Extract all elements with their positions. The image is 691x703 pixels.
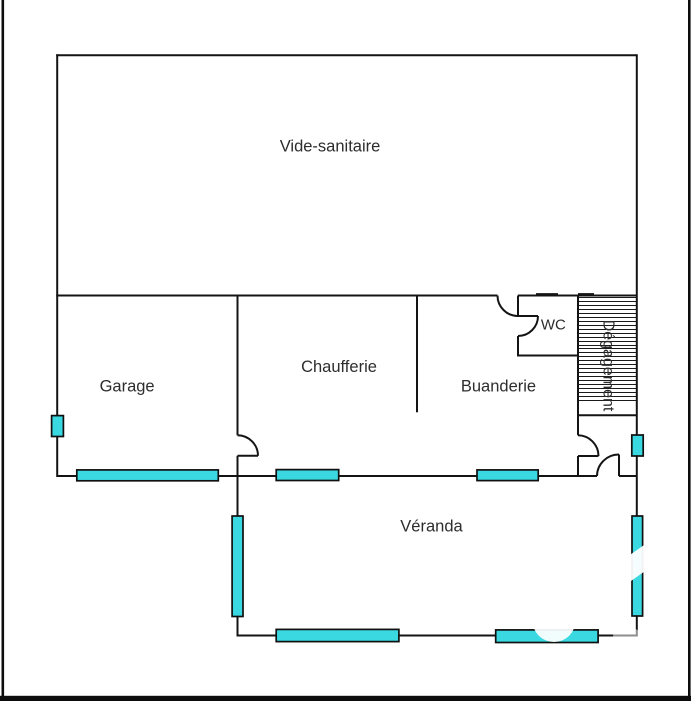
svg-text:WC: WC <box>541 316 566 333</box>
svg-text:Chaufferie: Chaufferie <box>301 358 377 376</box>
svg-text:Garage: Garage <box>100 378 155 396</box>
svg-text:Buanderie: Buanderie <box>461 377 536 395</box>
svg-text:Vide-sanitaire: Vide-sanitaire <box>280 138 381 156</box>
svg-text:Véranda: Véranda <box>400 518 463 536</box>
svg-text:Dégagement: Dégagement <box>600 320 617 412</box>
